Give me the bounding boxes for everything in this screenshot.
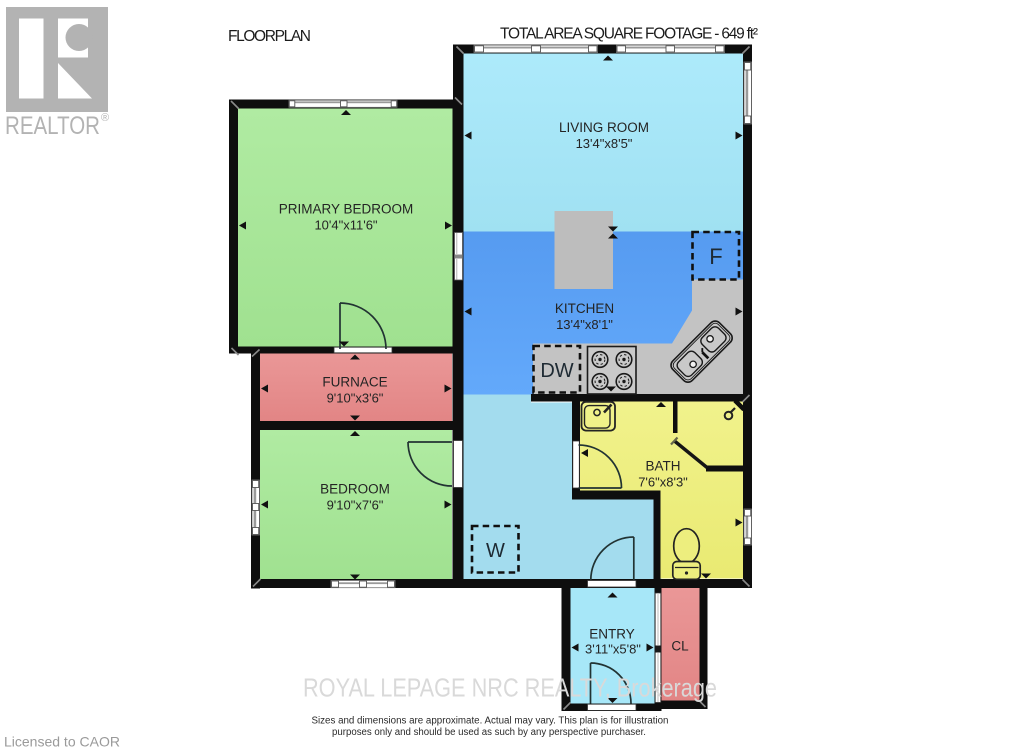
svg-text:CL: CL: [671, 639, 689, 654]
svg-text:9'10"x7'6": 9'10"x7'6": [327, 498, 384, 513]
svg-text:Sizes and dimensions are appro: Sizes and dimensions are approximate. Ac…: [312, 716, 669, 727]
svg-text:ROYAL LEPAGE NRC REALTY, Broke: ROYAL LEPAGE NRC REALTY, Brokerage: [303, 673, 717, 703]
svg-text:3'11"x5'8": 3'11"x5'8": [585, 642, 641, 657]
svg-text:F: F: [709, 244, 722, 269]
svg-text:PRIMARY BEDROOM: PRIMARY BEDROOM: [279, 202, 414, 217]
svg-text:KITCHEN: KITCHEN: [555, 301, 614, 316]
svg-text:7'6"x8'3": 7'6"x8'3": [638, 475, 688, 490]
svg-text:TOTAL AREA SQUARE FOOTAGE - 64: TOTAL AREA SQUARE FOOTAGE - 649 ft²: [500, 26, 758, 43]
svg-text:ENTRY: ENTRY: [589, 627, 635, 642]
svg-text:10'4"x11'6": 10'4"x11'6": [314, 218, 377, 233]
svg-text:®: ®: [101, 112, 109, 124]
svg-text:purposes only and should be us: purposes only and should be used as such…: [332, 727, 646, 738]
svg-text:FURNACE: FURNACE: [322, 375, 387, 390]
svg-text:REALTOR: REALTOR: [5, 112, 100, 140]
svg-text:BEDROOM: BEDROOM: [320, 482, 390, 497]
svg-text:FLOORPLAN: FLOORPLAN: [228, 28, 311, 45]
svg-text:9'10"x3'6": 9'10"x3'6": [327, 391, 384, 406]
svg-text:BATH: BATH: [645, 459, 680, 474]
svg-text:13'4"x8'5": 13'4"x8'5": [576, 136, 633, 151]
svg-text:DW: DW: [540, 360, 573, 382]
svg-text:W: W: [486, 540, 505, 562]
svg-text:Licensed to CAOR: Licensed to CAOR: [4, 734, 120, 750]
svg-text:LIVING ROOM: LIVING ROOM: [559, 120, 649, 135]
svg-text:13'4"x8'1": 13'4"x8'1": [556, 317, 613, 332]
